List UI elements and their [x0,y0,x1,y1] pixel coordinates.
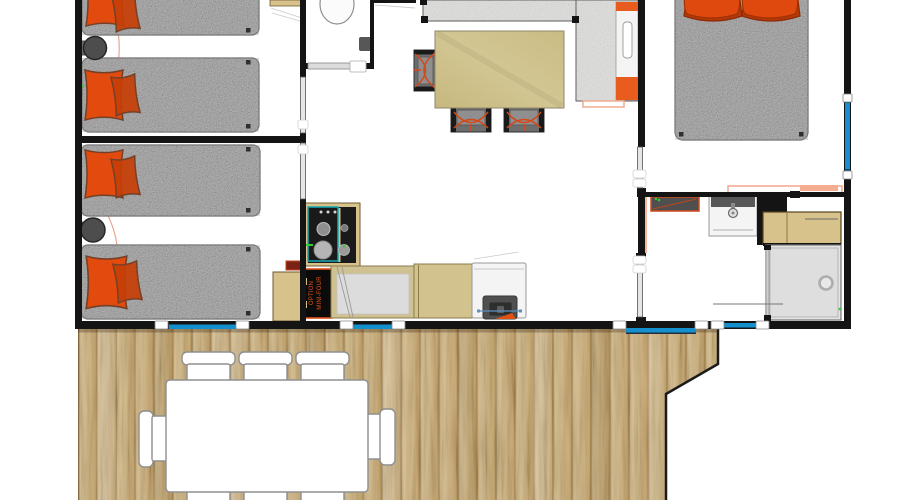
svg-text:OPTION: OPTION [309,281,315,305]
svg-text:MINI-FOUR: MINI-FOUR [317,276,323,310]
